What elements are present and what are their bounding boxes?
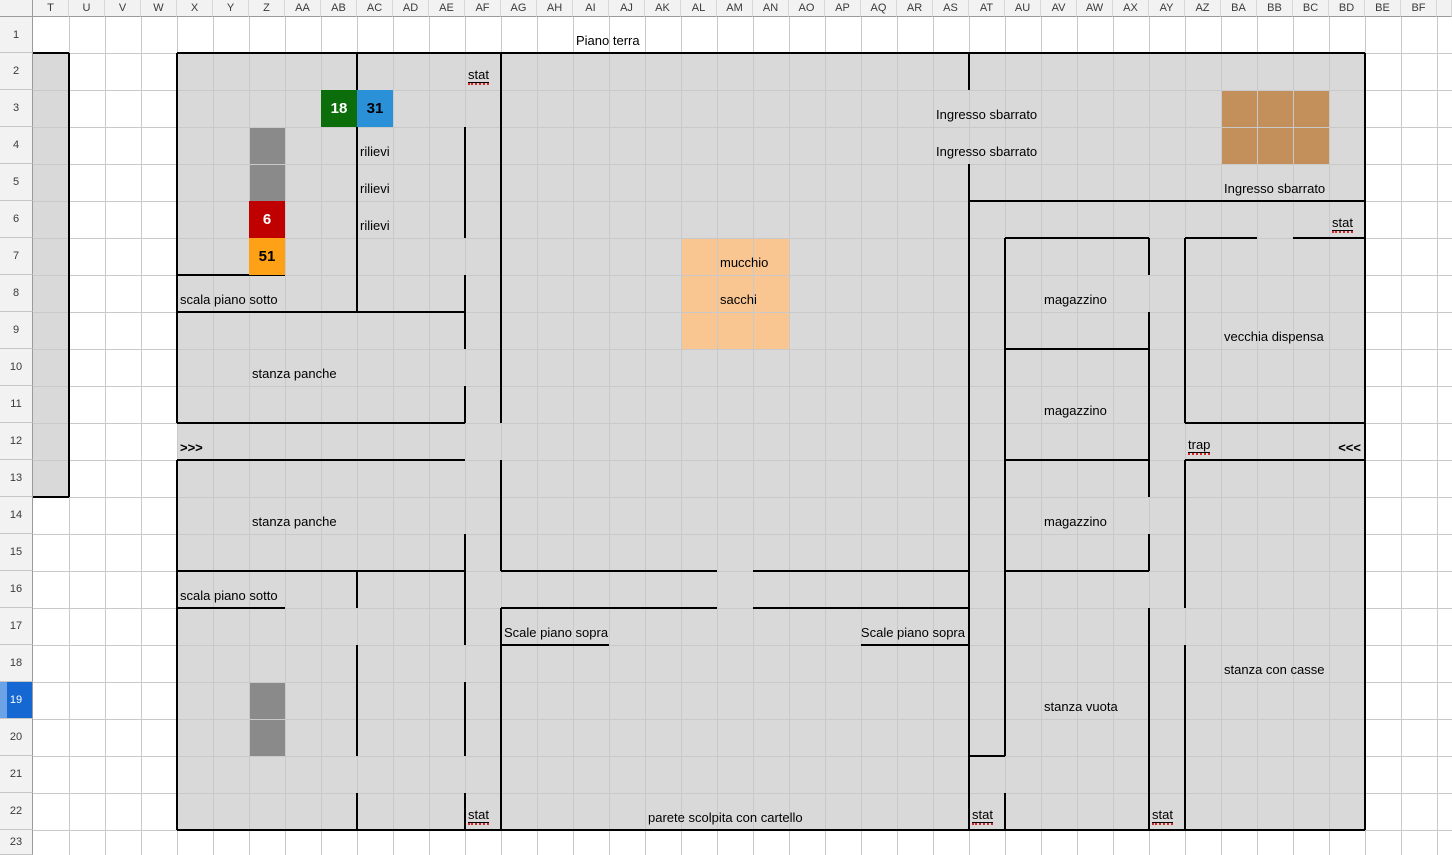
column-header-AE[interactable]: AE <box>429 0 465 17</box>
column-header-AA[interactable]: AA <box>285 0 321 17</box>
map-wall <box>177 459 465 461</box>
map-wall <box>1005 459 1149 461</box>
map-wall <box>356 571 358 608</box>
column-header-V[interactable]: V <box>105 0 141 17</box>
map-wall <box>177 422 465 424</box>
column-header-partial[interactable] <box>1437 0 1452 17</box>
map-wall <box>1148 238 1150 275</box>
gridline <box>33 534 1452 535</box>
gridline <box>33 127 1452 128</box>
map-wall <box>1005 348 1149 350</box>
column-header-AZ[interactable]: AZ <box>1185 0 1221 17</box>
map-wall <box>464 386 466 423</box>
gridline <box>861 17 862 855</box>
cell-label-X12[interactable]: >>> <box>177 423 203 460</box>
map-wall <box>68 53 70 497</box>
gridline <box>1077 17 1078 855</box>
cell-label-AQ17[interactable]: Scale piano sopra <box>861 608 969 645</box>
map-wall <box>176 460 178 830</box>
column-header-AK[interactable]: AK <box>645 0 681 17</box>
column-header-BC[interactable]: BC <box>1293 0 1329 17</box>
column-header-Z[interactable]: Z <box>249 0 285 17</box>
map-wall <box>356 793 358 830</box>
column-header-BE[interactable]: BE <box>1365 0 1401 17</box>
cell-label-AC5[interactable]: rilievi <box>357 164 390 201</box>
gridline <box>753 17 754 855</box>
cell-label-Z14[interactable]: stanza panche <box>249 497 337 534</box>
row-header-15[interactable]: 15 <box>0 534 33 571</box>
map-wall <box>356 645 358 756</box>
cell-label-AZ12[interactable]: trap <box>1185 423 1210 460</box>
cell-label-BA18[interactable]: stanza con casse <box>1221 645 1324 682</box>
cell-label-AT22[interactable]: stat <box>969 793 993 830</box>
row-header-14[interactable]: 14 <box>0 497 33 534</box>
column-header-AQ[interactable]: AQ <box>861 0 897 17</box>
map-wall <box>1185 237 1257 239</box>
row-header-23[interactable]: 23 <box>0 830 33 855</box>
gridline <box>1257 17 1258 855</box>
row-header-6[interactable]: 6 <box>0 201 33 238</box>
gridline <box>1041 17 1042 855</box>
gridline <box>789 17 790 855</box>
gridline <box>321 17 322 855</box>
row-header-20[interactable]: 20 <box>0 719 33 756</box>
column-header-BB[interactable]: BB <box>1257 0 1293 17</box>
select-all-corner[interactable] <box>0 0 33 17</box>
map-wall <box>968 164 970 830</box>
gridline <box>33 719 1452 720</box>
cell-label-AC6[interactable]: rilievi <box>357 201 390 238</box>
map-wall <box>1184 460 1186 608</box>
row-header-9[interactable]: 9 <box>0 312 33 349</box>
cell-label-X8[interactable]: scala piano sotto <box>177 275 278 312</box>
gridline <box>33 349 1452 350</box>
column-header-X[interactable]: X <box>177 0 213 17</box>
spreadsheet-app: TUVWXYZAAABACADAEAFAGAHAIAJAKALAMANAOAPA… <box>0 0 1452 855</box>
column-header-AO[interactable]: AO <box>789 0 825 17</box>
cell-label-BD6[interactable]: stat <box>1329 201 1353 238</box>
row-header-2[interactable]: 2 <box>0 53 33 90</box>
gridline <box>105 17 106 855</box>
column-header-AM[interactable]: AM <box>717 0 753 17</box>
value-cell-AB3[interactable]: 18 <box>321 90 357 127</box>
row-header-1[interactable]: 1 <box>0 17 33 53</box>
cell-label-AV19[interactable]: stanza vuota <box>1041 682 1118 719</box>
row-header-18[interactable]: 18 <box>0 645 33 682</box>
cell-label-AS4[interactable]: Ingresso sbarrato <box>933 127 1037 164</box>
cell-label-BA9[interactable]: vecchia dispensa <box>1221 312 1324 349</box>
column-header-AS[interactable]: AS <box>933 0 969 17</box>
column-header-AV[interactable]: AV <box>1041 0 1077 17</box>
gridline <box>717 17 718 855</box>
row-header-10[interactable]: 10 <box>0 349 33 386</box>
map-wall <box>176 53 178 423</box>
gridline <box>33 386 1452 387</box>
cell-label-AC4[interactable]: rilievi <box>357 127 390 164</box>
cell-label-X16[interactable]: scala piano sotto <box>177 571 278 608</box>
row-header-16[interactable]: 16 <box>0 571 33 608</box>
map-wall <box>1184 238 1186 423</box>
map-wall <box>500 460 502 571</box>
cell-label-AG17[interactable]: Scale piano sopra <box>501 608 608 645</box>
value-cell-AC3[interactable]: 31 <box>357 90 393 127</box>
column-header-AY[interactable]: AY <box>1149 0 1185 17</box>
gridline <box>609 17 610 855</box>
map-wall <box>1005 570 1149 572</box>
gridline <box>537 17 538 855</box>
row-header-8[interactable]: 8 <box>0 275 33 312</box>
gridline <box>681 17 682 855</box>
column-header-AL[interactable]: AL <box>681 0 717 17</box>
cell-label-AM8[interactable]: sacchi <box>717 275 757 312</box>
column-header-AU[interactable]: AU <box>1005 0 1041 17</box>
gridline <box>249 17 250 855</box>
column-header-AN[interactable]: AN <box>753 0 789 17</box>
gridline <box>285 17 286 855</box>
cell-label-AY22[interactable]: stat <box>1149 793 1173 830</box>
cell-label-AS3[interactable]: Ingresso sbarrato <box>933 90 1037 127</box>
map-wall <box>969 755 1005 757</box>
column-header-U[interactable]: U <box>69 0 105 17</box>
value-cell-Z7[interactable]: 51 <box>249 238 285 275</box>
map-wall <box>33 496 69 498</box>
column-header-AW[interactable]: AW <box>1077 0 1113 17</box>
cell-label-AV14[interactable]: magazzino <box>1041 497 1107 534</box>
column-header-AT[interactable]: AT <box>969 0 1005 17</box>
column-header-AB[interactable]: AB <box>321 0 357 17</box>
gridline <box>213 17 214 855</box>
gridline <box>1293 17 1294 855</box>
column-header-AI[interactable]: AI <box>573 0 609 17</box>
gridline <box>1113 17 1114 855</box>
map-wall <box>753 570 969 572</box>
gridline <box>429 17 430 855</box>
column-header-AP[interactable]: AP <box>825 0 861 17</box>
map-wall <box>1004 793 1006 830</box>
cell-label-AF2[interactable]: stat <box>465 53 489 90</box>
gridline <box>393 17 394 855</box>
column-header-AH[interactable]: AH <box>537 0 573 17</box>
cell-label-BA5[interactable]: Ingresso sbarrato <box>1221 164 1325 201</box>
column-header-AR[interactable]: AR <box>897 0 933 17</box>
column-header-BA[interactable]: BA <box>1221 0 1257 17</box>
gridline <box>645 17 646 855</box>
map-wall <box>464 275 466 349</box>
row-header-19[interactable]: 19 <box>0 682 33 719</box>
row-header-12[interactable]: 12 <box>0 423 33 460</box>
column-header-BD[interactable]: BD <box>1329 0 1365 17</box>
gridline <box>573 17 574 855</box>
cell-label-BD12[interactable]: <<< <box>1329 423 1365 460</box>
map-wall <box>1148 534 1150 571</box>
cell-label-AK22[interactable]: parete scolpita con cartello <box>645 793 803 830</box>
gridline <box>33 756 1452 757</box>
gridline <box>33 682 1452 683</box>
row-header-17[interactable]: 17 <box>0 608 33 645</box>
map-wall <box>464 127 466 238</box>
gridline <box>1401 17 1402 855</box>
gridline <box>897 17 898 855</box>
row-header-21[interactable]: 21 <box>0 756 33 793</box>
cell-label-AF22[interactable]: stat <box>465 793 489 830</box>
value-cell-Z6[interactable]: 6 <box>249 201 285 238</box>
cell-label-AV11[interactable]: magazzino <box>1041 386 1107 423</box>
map-wall <box>1184 645 1186 830</box>
column-header-AD[interactable]: AD <box>393 0 429 17</box>
column-header-AG[interactable]: AG <box>501 0 537 17</box>
column-header-Y[interactable]: Y <box>213 0 249 17</box>
row-header-5[interactable]: 5 <box>0 164 33 201</box>
gridline <box>825 17 826 855</box>
row-header-4[interactable]: 4 <box>0 127 33 164</box>
map-wall <box>968 53 970 90</box>
gridline <box>33 497 1452 498</box>
cell-label-AM7[interactable]: mucchio <box>717 238 768 275</box>
row-header-22[interactable]: 22 <box>0 793 33 830</box>
column-header-T[interactable]: T <box>33 0 69 17</box>
map-wall <box>501 570 717 572</box>
gridline <box>141 17 142 855</box>
gridline <box>33 90 1452 91</box>
row-header-13[interactable]: 13 <box>0 460 33 497</box>
cell-label-AI1[interactable]: Piano terra <box>573 17 640 53</box>
map-wall <box>1148 312 1150 497</box>
column-header-AC[interactable]: AC <box>357 0 393 17</box>
map-wall <box>464 534 466 645</box>
map-wall <box>464 682 466 756</box>
cell-label-AV8[interactable]: magazzino <box>1041 275 1107 312</box>
row-header-11[interactable]: 11 <box>0 386 33 423</box>
column-header-BF[interactable]: BF <box>1401 0 1437 17</box>
map-wall <box>1004 238 1006 756</box>
gridline <box>1221 17 1222 855</box>
column-header-AJ[interactable]: AJ <box>609 0 645 17</box>
column-header-W[interactable]: W <box>141 0 177 17</box>
map-wall <box>1005 237 1149 239</box>
row-header-3[interactable]: 3 <box>0 90 33 127</box>
map-wall <box>500 53 502 423</box>
cell-label-Z10[interactable]: stanza panche <box>249 349 337 386</box>
row-header-7[interactable]: 7 <box>0 238 33 275</box>
column-header-AX[interactable]: AX <box>1113 0 1149 17</box>
map-wall <box>33 52 69 54</box>
column-header-AF[interactable]: AF <box>465 0 501 17</box>
gridline <box>1437 17 1438 855</box>
